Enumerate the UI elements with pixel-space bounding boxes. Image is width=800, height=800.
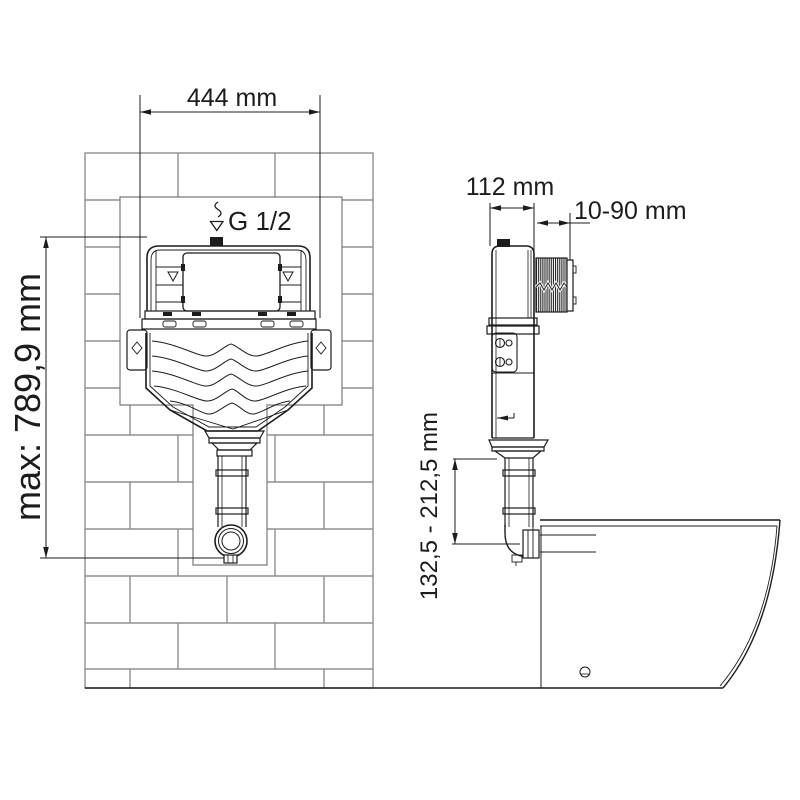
- inlet-cap: [210, 237, 223, 246]
- wall-finish-label: 10-90 mm: [574, 197, 687, 225]
- cistern-side: [487, 239, 576, 566]
- dimension-outlet-height: [452, 459, 520, 544]
- flush-pipe-side: [489, 438, 548, 566]
- front-view: 444 mm max: 789,9 mm G 1/2: [7, 84, 373, 688]
- side-depth-label: 112 mm: [466, 173, 554, 201]
- side-view: 112 mm 10-90 mm: [416, 173, 780, 688]
- cistern-installation-drawing: 444 mm max: 789,9 mm G 1/2: [0, 0, 800, 800]
- flush-sleeve: [536, 258, 576, 312]
- technical-drawing-page: 444 mm max: 789,9 mm G 1/2: [0, 0, 800, 800]
- water-supply-label: G 1/2: [228, 206, 292, 236]
- dimension-side-depth: [490, 203, 534, 252]
- toilet-bowl: [540, 520, 780, 688]
- front-height-label: max: 789,9 mm: [7, 273, 48, 521]
- outlet-height-label: 132,5 - 212,5 mm: [416, 412, 443, 600]
- front-width-label: 444 mm: [187, 84, 277, 112]
- fixing-hole: [580, 667, 590, 677]
- flow-arrow: [497, 413, 514, 421]
